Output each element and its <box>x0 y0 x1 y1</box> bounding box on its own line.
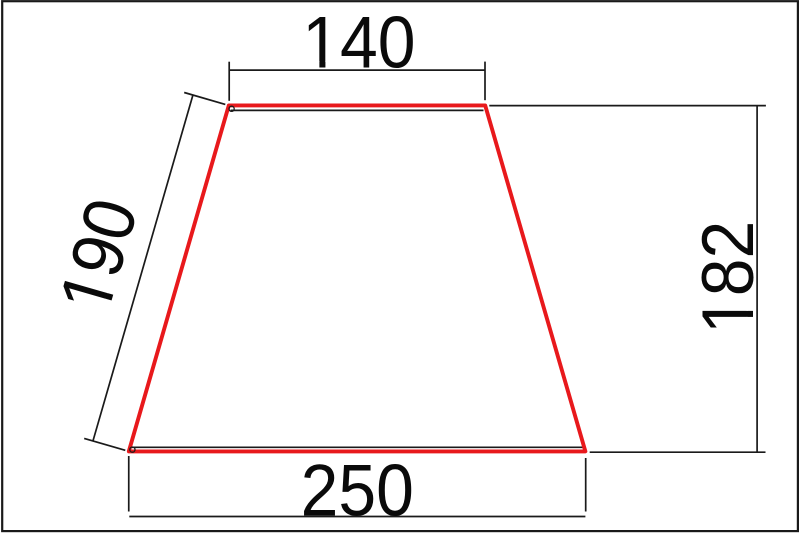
svg-text:182: 182 <box>687 221 769 334</box>
svg-text:140: 140 <box>302 1 415 83</box>
svg-text:250: 250 <box>301 449 414 531</box>
svg-text:190: 190 <box>43 190 153 321</box>
